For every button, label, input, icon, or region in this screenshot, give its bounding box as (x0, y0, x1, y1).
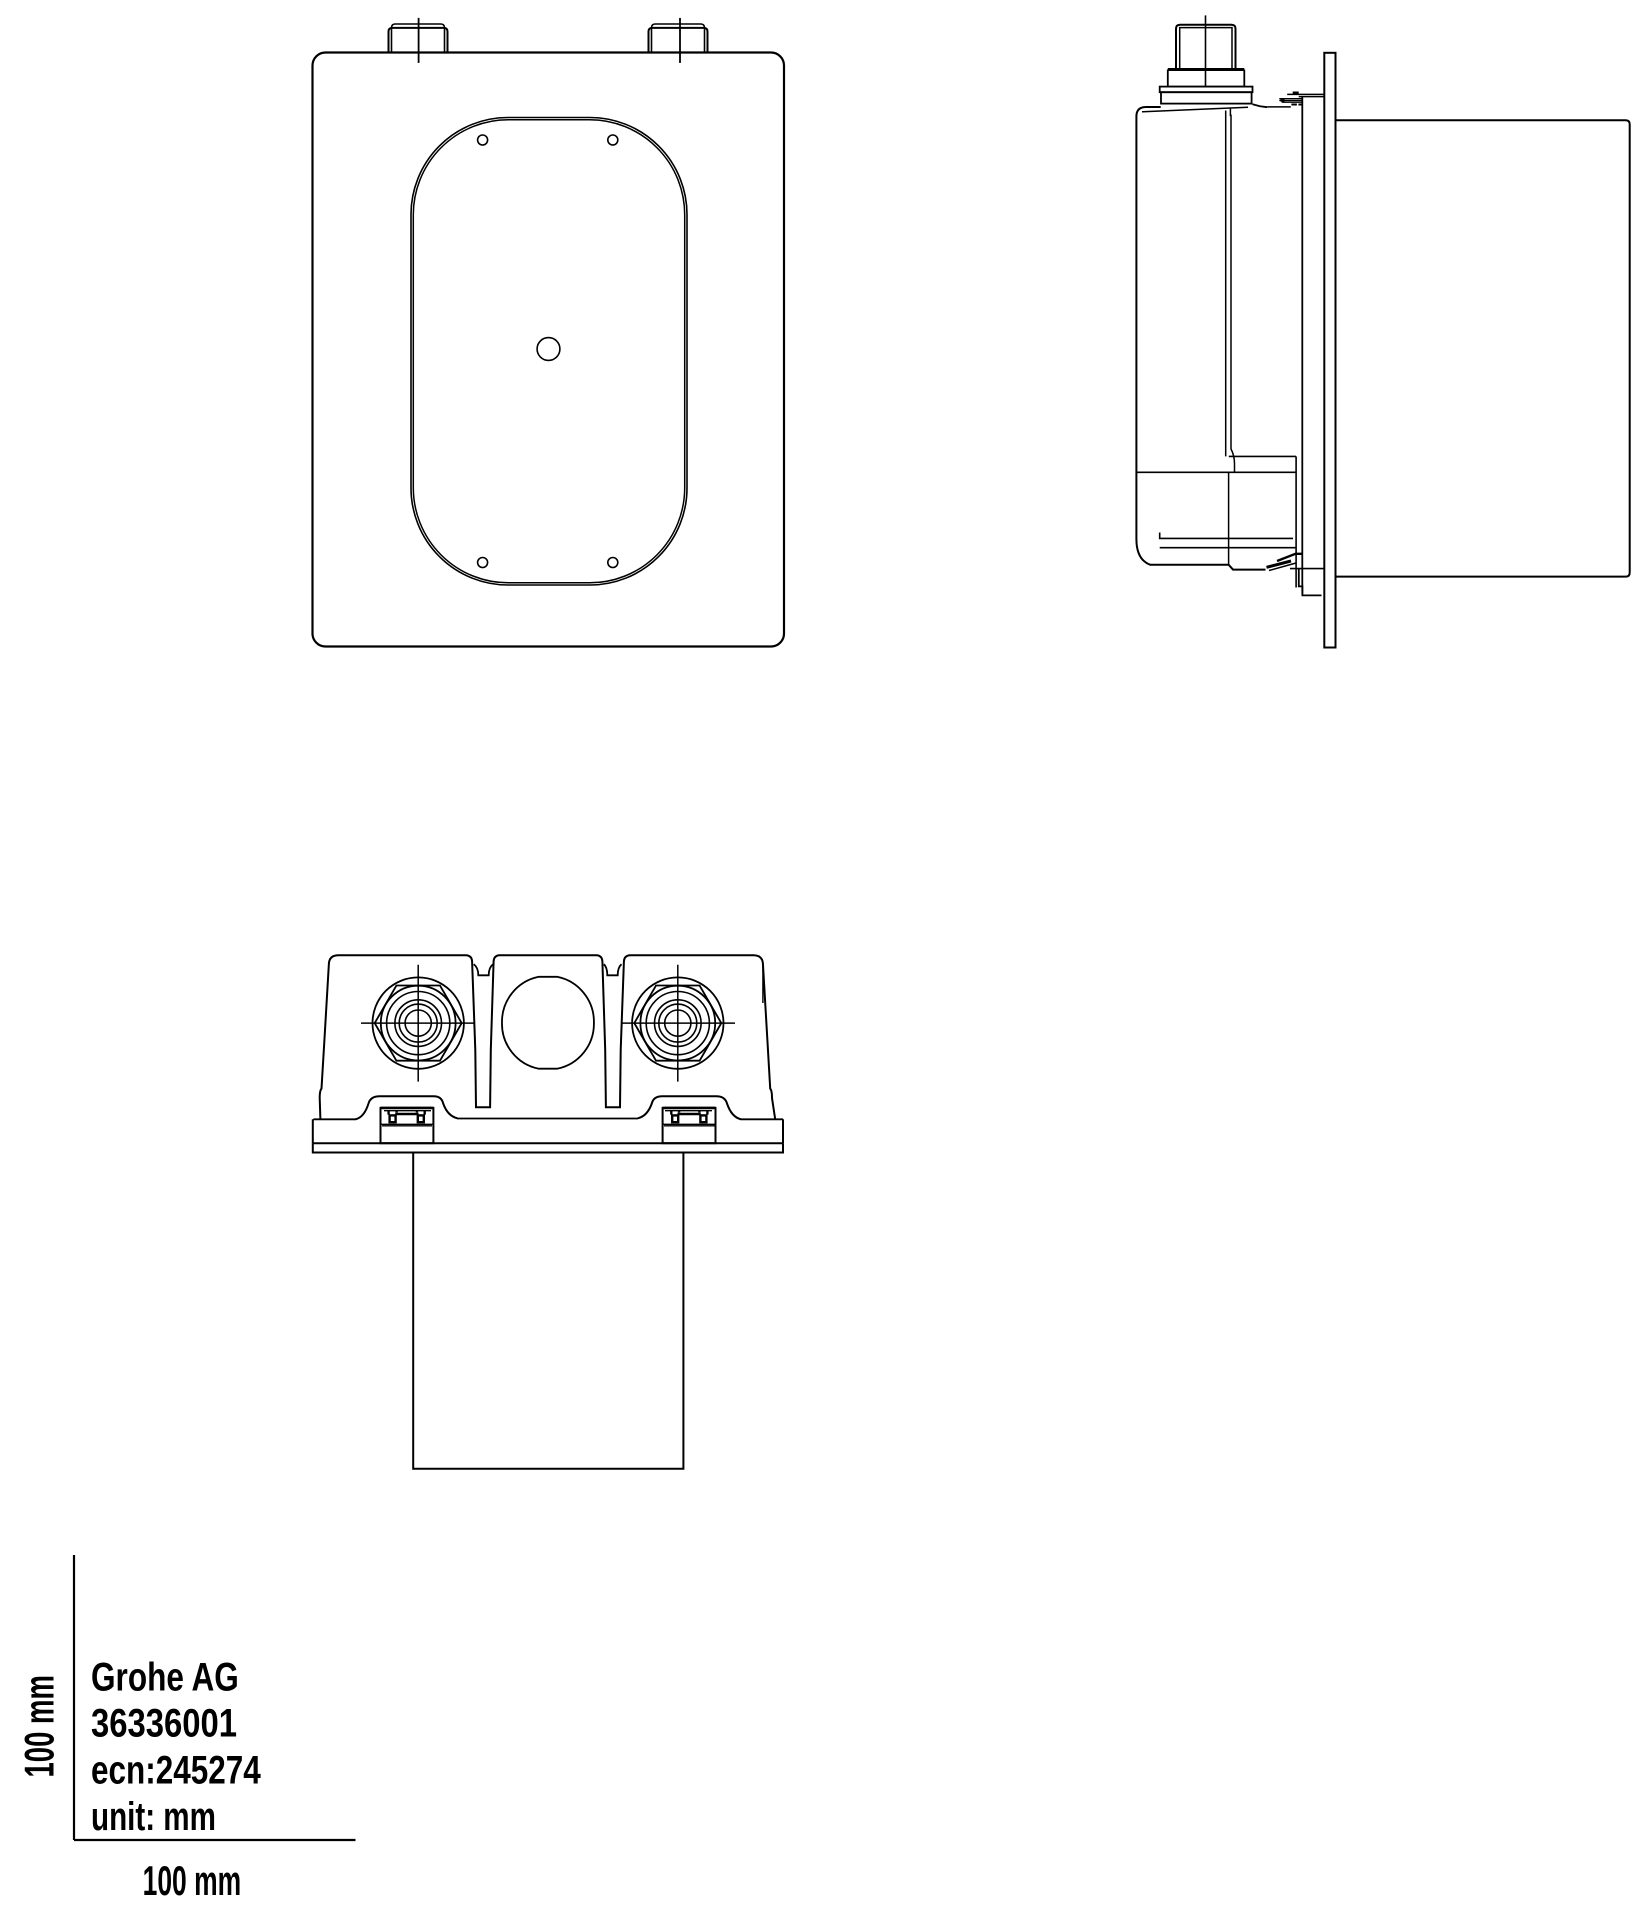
svg-text:36336001: 36336001 (91, 1700, 237, 1745)
svg-text:100 mm: 100 mm (16, 1675, 63, 1777)
svg-text:ecn:245274: ecn:245274 (91, 1747, 261, 1793)
svg-text:100 mm: 100 mm (143, 1858, 242, 1905)
svg-text:unit: mm: unit: mm (91, 1795, 216, 1839)
svg-text:Grohe AG: Grohe AG (91, 1654, 239, 1700)
